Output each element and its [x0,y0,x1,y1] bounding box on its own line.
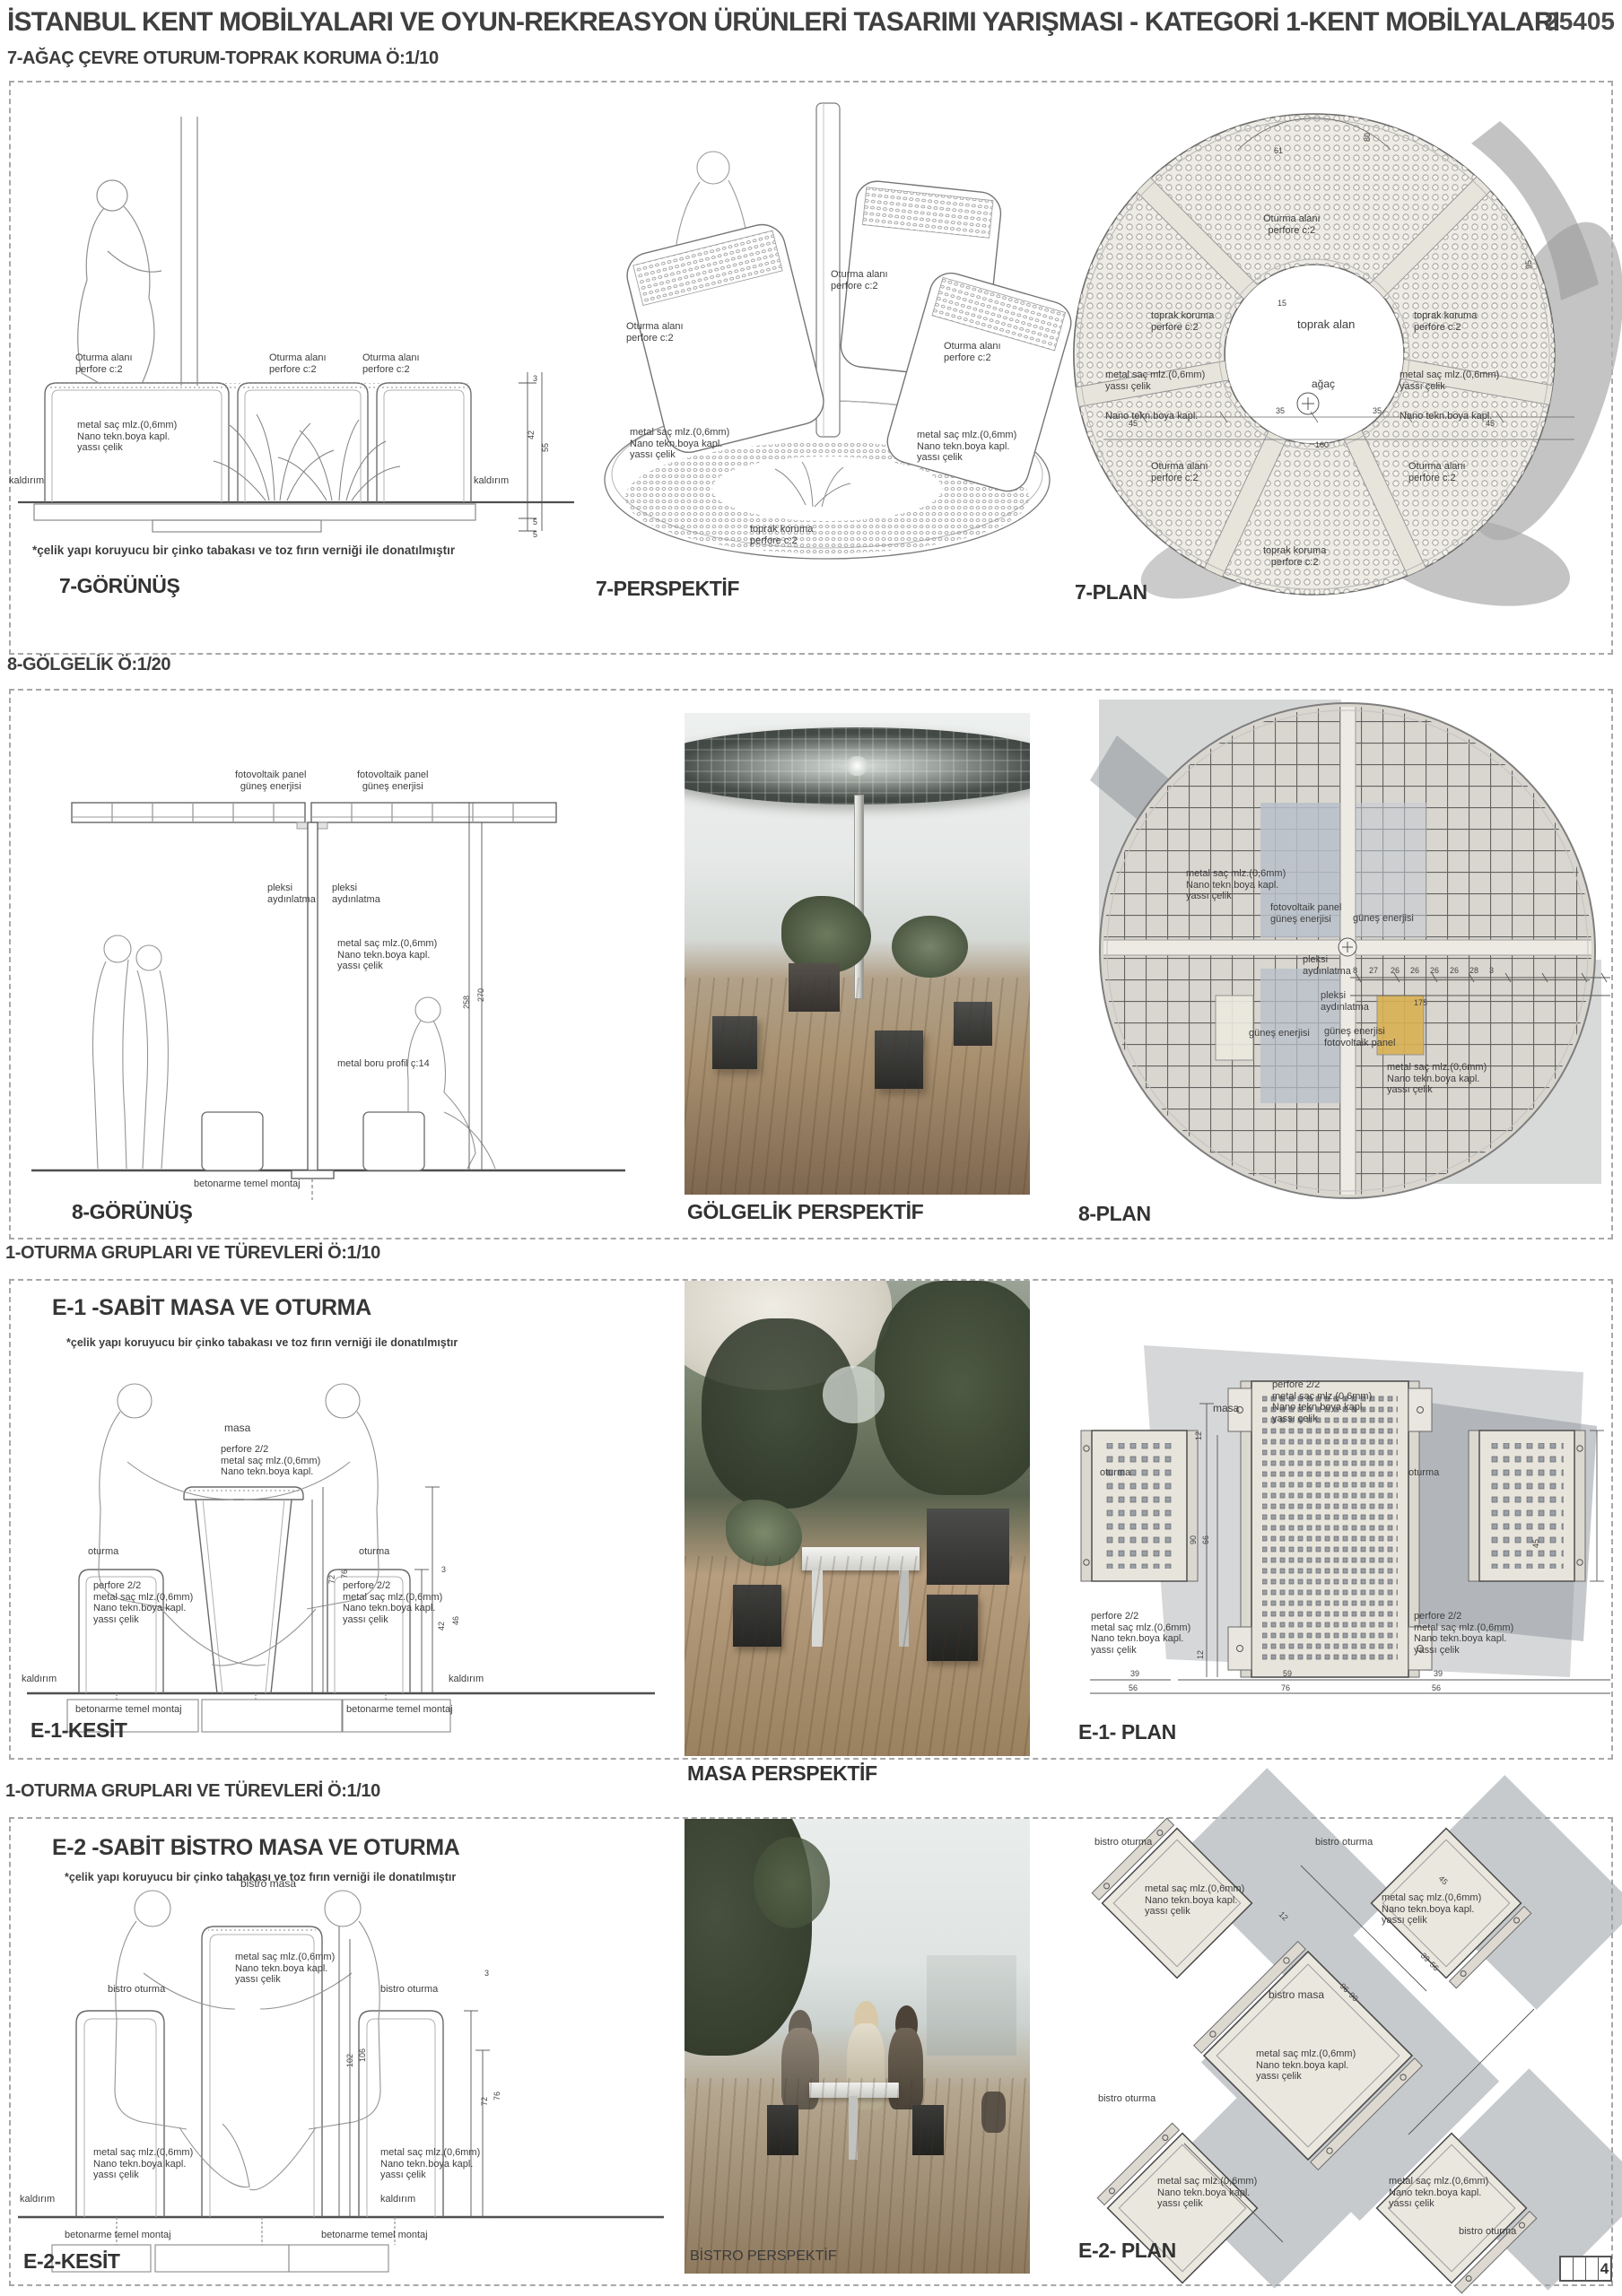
label-line: kaldırım [22,1674,57,1685]
label-line: Oturma alanı [1408,461,1466,473]
material-spec-label: metal saç mlz.(0,6mm) Nano tekn.boya kap… [1387,1062,1487,1096]
label-line: metal saç mlz.(0,6mm) [1091,1622,1190,1634]
label-line: yassı çelik [630,449,729,461]
bistro-seat-label: bistro oturma [1094,1837,1152,1848]
label-line: fotovoltaik panel [1270,902,1342,914]
seat-area-label: Oturma alanı perfore c:2 [1263,213,1321,236]
dim-value: 26 [1410,967,1419,975]
solar-label: güneş enerjisi [1249,1028,1310,1039]
label-line: yassı çelik [337,961,437,972]
bistro-seat-label: bistro oturma [108,1984,165,1996]
seat-area-label: Oturma alanı perfore c:2 [944,341,1001,363]
material-spec-label: metal saç mlz.(0,6mm) Nano tekn.boya kap… [77,420,177,454]
page-cell [1586,2257,1599,2280]
dim-value: 42 [528,430,536,439]
drawing-e1-kesit [27,1354,673,1735]
bistro-table-label: bistro masa [1269,1989,1324,2001]
label-line: Oturma alanı [944,341,1001,352]
label-line: betonarme temel montaj [194,1178,301,1190]
label-line: metal saç mlz.(0,6mm) [93,2147,193,2159]
caption-7-plan: 7-PLAN [1075,580,1147,604]
label-line: perfore c:2 [75,364,133,376]
label-line: yassı çelik [917,452,1016,464]
perforation-spec-label: perfore 2/2 metal saç mlz.(0,6mm) Nano t… [1091,1611,1190,1656]
label-line: toprak koruma [1414,310,1477,322]
seat-label: oturma [359,1546,389,1558]
label-line: perfore c:2 [362,364,420,376]
table-label: masa [224,1422,250,1434]
dim-value: 61 [1274,147,1283,155]
table-plan [1228,1381,1432,1677]
label-line: Nano tekn.boya kapl. [1400,411,1492,422]
render-photo-bistro: BİSTRO PERSPEKTİF [685,1819,1030,2274]
label-line: oturma [1408,1467,1439,1479]
bracket [1408,1388,1432,1431]
render-photo-golgelik [685,713,1030,1195]
perforation-spec-label: perfore 2/2 metal saç mlz.(0,6mm) Nano t… [1272,1379,1372,1424]
background-structure [927,1955,1016,2056]
label-line: güneş enerjisi [1249,1028,1310,1039]
perforated-seat [1490,1443,1564,1569]
label-line: yassı çelik [343,1614,442,1626]
label-line: Nano tekn.boya kapl. [337,950,437,961]
label-line: metal saç mlz.(0,6mm) [235,1952,335,1963]
dim-value: 258 [463,996,471,1009]
dim-value: 95 [1525,260,1533,269]
dim-value: 175 [1414,999,1427,1007]
dim-value: 45 [1129,420,1138,428]
seat-area-label: Oturma alanı perfore c:2 [1408,461,1466,483]
label-line: kaldırım [449,1674,484,1685]
label-line: fotovoltaik panel [357,770,429,781]
perforation-spec-label: perfore 2/2 metal saç mlz.(0,6mm) Nano t… [221,1444,320,1478]
bistro-seat-label: bistro oturma [1098,2093,1155,2105]
material-spec-label: metal saç mlz.(0,6mm) Nano tekn.boya kap… [93,2147,193,2181]
page-cell [1561,2257,1574,2280]
dim-value: 59 [1283,1670,1292,1678]
tree-label: ağaç [1312,378,1335,390]
label-line: yassı çelik [235,1974,335,1986]
label-line: perfore c:2 [1414,322,1477,334]
dim-value: 28 [1469,967,1478,975]
label-line: bistro oturma [1315,1837,1373,1848]
photovoltaic-label: fotovoltaik panel güneş enerjisi [357,770,429,792]
foundation-label: betonarme temel montaj [194,1178,301,1190]
label-line: aydınlatma [1303,966,1351,978]
label-line: metal saç mlz.(0,6mm) [1382,1892,1481,1904]
dim-value: 76 [1281,1684,1290,1692]
label-line: metal saç mlz.(0,6mm) [630,427,729,439]
dim-value: 27 [1369,967,1378,975]
dim-value: 35 [1373,407,1382,415]
label-line: oturma [359,1546,389,1558]
label-line: metal saç mlz.(0,6mm) [337,938,437,950]
label-line: Nano tekn.boya kapl. [235,1963,335,1975]
label-line: betonarme temel montaj [75,1704,182,1716]
section8-title: 8-GÖLGELİK Ö:1/20 [7,655,170,675]
plants [214,414,400,500]
label-line: aydınlatma [332,894,380,906]
caption-e2-plan: E-2- PLAN [1078,2239,1176,2263]
person-silhouette [115,1891,249,2187]
dim-value: 66 [1202,1535,1210,1544]
material-spec-label: Nano tekn.boya kapl. [1105,411,1198,422]
caption-8-gorunus: 8-GÖRÜNÜŞ [72,1200,192,1224]
caption-7-perspektif: 7-PERSPEKTİF [596,577,739,601]
seat-area-label: Oturma alanı perfore c:2 [75,352,133,375]
label-line: betonarme temel montaj [65,2230,171,2241]
perforation-spec-label: perfore 2/2 metal saç mlz.(0,6mm) Nano t… [343,1580,442,1625]
dim-value: 12 [1197,1650,1205,1659]
plexi-light-label: pleksi aydınlatma [1303,954,1351,977]
label-line: perfore 2/2 [93,1580,193,1592]
dim-value: 106 [359,2048,367,2062]
solar-label: güneş enerjisi [1353,913,1414,925]
tree-canopy [754,1837,830,1927]
dim-value: 55 [542,443,550,452]
label-line: yassı çelik [1256,2071,1356,2083]
render-photo-masa [685,1281,1030,1756]
material-spec-label: metal saç mlz.(0,6mm) Nano tekn.boya kap… [337,938,437,972]
label-line: metal saç mlz.(0,6mm) [1272,1391,1372,1403]
dim-value: 15 [1278,300,1286,308]
dim-value: 45 [1532,1539,1540,1548]
pavement-label: kaldırım [449,1674,484,1685]
dim-value: 46 [452,1616,460,1625]
label-line: Nano tekn.boya kapl. [93,2159,193,2170]
label-line: Nano tekn.boya kapl. [630,439,729,450]
caption-e1-kesit: E-1-KESİT [31,1718,127,1743]
furniture-patch [1216,996,1253,1060]
label-line: metal boru profil ç:14 [337,1058,430,1070]
material-spec-label: metal saç mlz.(0,6mm) yassı çelik [1105,370,1205,392]
material-spec-label: metal saç mlz.(0,6mm) yassı çelik [1400,370,1499,392]
perforated-seat [1103,1443,1176,1569]
soil-protection-label: toprak koruma perfore c:2 [1414,310,1477,333]
steel-pipe-label: metal boru profil ç:14 [337,1058,430,1070]
perforated-seat-strip [48,383,468,388]
dim-value: 3 [441,1566,446,1574]
label-line: Nano tekn.boya kapl. [1157,2187,1257,2199]
label-line: bistro oturma [108,1984,165,1996]
label-line: aydınlatma [1321,1002,1369,1013]
caption-golgelik-perspektif: GÖLGELİK PERSPEKTİF [687,1200,923,1224]
label-line: fotovoltaik panel [235,770,307,781]
pavement-label: kaldırım [9,475,44,487]
dim-value: 39 [1130,1670,1139,1678]
label-line: Nano tekn.boya kapl. [93,1603,193,1614]
label-line: yassı çelik [1186,891,1286,902]
seat-plan-left [1081,1431,1198,1581]
label-line: Oturma alanı [75,352,133,364]
foundation-label: betonarme temel montaj [75,1704,182,1716]
dim-value: 45 [1486,420,1495,428]
label-line: Nano tekn.boya kapl. [1091,1633,1190,1645]
label-line: kaldırım [380,2194,415,2205]
soil-protection-label: toprak koruma perfore c:2 [750,524,813,546]
perforated-tabletop [1262,1394,1398,1665]
label-line: perfore c:2 [1263,557,1326,569]
label-line: metal saç mlz.(0,6mm) [221,1456,320,1467]
page-cell [1574,2257,1586,2280]
dim-value: 35 [1276,407,1285,415]
dim-value: 8 [1353,967,1357,975]
label-line: toprak alan [1297,319,1355,331]
label-line: perfore c:2 [1151,473,1208,484]
pole [292,822,334,1200]
label-line: yassı çelik [1382,1915,1481,1926]
caption-masa-perspektif: MASA PERSPEKTİF [687,1761,877,1786]
canopy [72,803,556,822]
label-line: metal saç mlz.(0,6mm) [1389,2176,1488,2187]
label-line: yassı çelik [1105,381,1205,393]
label-line: yassı çelik [1091,1645,1190,1657]
label-line: perfore c:2 [831,281,888,292]
label-line: metal saç mlz.(0,6mm) [380,2147,480,2159]
pavement-label: kaldırım [380,2194,415,2205]
label-line: bistro oturma [1094,1837,1152,1848]
bistro-seat-label: bistro oturma [1459,2226,1516,2238]
perforation-spec-label: perfore 2/2 metal saç mlz.(0,6mm) Nano t… [1414,1611,1513,1656]
label-line: Nano tekn.boya kapl. [1414,1633,1513,1645]
deck-planks [685,2078,1030,2274]
dim-value: 160 [1315,441,1329,449]
label-line: bistro masa [240,1878,296,1890]
label-line: güneş enerjisi [1324,1026,1396,1038]
plexi-light-label: pleksi aydınlatma [267,883,316,905]
photovoltaic-label: fotovoltaik panel güneş enerjisi [1270,902,1342,925]
dim-value: 26 [1391,967,1400,975]
label-line: metal saç mlz.(0,6mm) [1256,2048,1356,2060]
page-indicator: 4 [1559,2256,1612,2282]
label-line: betonarme temel montaj [321,2230,428,2241]
steel-coating-note: *çelik yapı koruyucu bir çinko tabakası … [66,1336,458,1349]
label-line: pleksi [1303,954,1351,966]
material-spec-label: metal saç mlz.(0,6mm) Nano tekn.boya kap… [1157,2176,1257,2210]
label-line: Nano tekn.boya kapl. [1387,1074,1487,1085]
sky-gap [823,1366,885,1423]
dimension-lines [519,372,542,531]
label-line: yassı çelik [1400,381,1499,393]
plexi-light-label: pleksi aydınlatma [1321,990,1369,1013]
caption-e1-plan: E-1- PLAN [1078,1720,1176,1744]
pavement-label: kaldırım [474,475,509,487]
dim-value: 26 [1450,967,1459,975]
entry-number: 25405 [1518,7,1615,36]
material-spec-label: metal saç mlz.(0,6mm) Nano tekn.boya kap… [380,2147,480,2181]
drawing-8-plan [1081,700,1615,1202]
label-line: Nano tekn.boya kapl. [1272,1402,1372,1413]
label-line: toprak koruma [1263,545,1326,557]
label-line: Nano tekn.boya kapl. [1105,411,1198,422]
dim-value: 72 [481,2097,489,2106]
label-line: metal saç mlz.(0,6mm) [1400,370,1499,381]
label-line: perfore 2/2 [343,1580,442,1592]
label-line: perfore c:2 [269,364,327,376]
sectionE1-group-title: 1-OTURMA GRUPLARI VE TÜREVLERİ Ö:1/10 [5,1243,380,1264]
label-line: perfore c:2 [626,333,684,344]
label-line: metal saç mlz.(0,6mm) [1145,1883,1244,1895]
bistro-table-label: bistro masa [240,1878,296,1890]
label-line: Nano tekn.boya kapl. [1145,1895,1244,1907]
caption-7-gorunus: 7-GÖRÜNÜŞ [59,574,179,598]
dimension-lines [462,803,489,1170]
soil-area-label: toprak alan [1297,319,1355,331]
pavement-label: kaldırım [20,2194,55,2205]
perforated-tabletop [208,1926,316,1931]
dim-value: 56 [1432,1684,1441,1692]
material-spec-label: metal saç mlz.(0,6mm) Nano tekn.boya kap… [1145,1883,1244,1918]
deck-planks [685,978,1030,1195]
label-line: yassı çelik [1157,2198,1257,2210]
sectionE1-heading: E-1 -SABİT MASA VE OTURMA [52,1295,371,1321]
seat-label: oturma [88,1546,118,1558]
canopy-light [847,756,868,775]
caption-bistro-perspektif: BİSTRO PERSPEKTİF [690,2248,837,2265]
label-line: Nano tekn.boya kapl. [917,441,1016,453]
material-spec-label: metal saç mlz.(0,6mm) Nano tekn.boya kap… [1382,1892,1481,1926]
soil-protection-label: toprak koruma perfore c:2 [1263,545,1326,568]
sectionE2-group-title: 1-OTURMA GRUPLARI VE TÜREVLERİ Ö:1/10 [5,1781,380,1802]
deck-planks [685,1556,1030,1756]
label-line: Oturma alanı [269,352,327,364]
label-line: perfore c:2 [1408,473,1466,484]
label-line: perfore c:2 [1151,322,1214,334]
dim-value: 102 [346,2054,354,2067]
couple-silhouette [93,935,169,1169]
dim-value: 3 [1489,967,1494,975]
label-line: bistro oturma [380,1984,438,1996]
sectionE2-heading: E-2 -SABİT BİSTRO MASA VE OTURMA [52,1835,459,1861]
dim-value: 42 [438,1622,446,1631]
label-line: Nano tekn.boya kapl. [380,2159,480,2170]
label-line: kaldırım [474,475,509,487]
drawing-e2-kesit [18,1883,682,2278]
label-line: metal saç mlz.(0,6mm) [1414,1622,1513,1634]
label-line: Nano tekn.boya kapl. [221,1466,320,1478]
material-spec-label: metal saç mlz.(0,6mm) Nano tekn.boya kap… [1186,868,1286,902]
label-line: metal saç mlz.(0,6mm) [1186,868,1286,880]
dim-value: 26 [1430,967,1439,975]
soil-protection-label: toprak koruma perfore c:2 [1151,310,1214,333]
tree-trunk [181,117,197,386]
label-line: güneş enerjisi [235,781,307,793]
label-line: yassı çelik [1145,1906,1244,1918]
competition-board: { "header": { "title": "İSTANBUL KENT MO… [0,0,1622,2296]
label-line: kaldırım [20,2194,55,2205]
drawing-8-gorunus [22,717,632,1220]
label-line: masa [224,1422,250,1434]
seat-plan-right [1469,1431,1585,1581]
material-spec-label: metal saç mlz.(0,6mm) Nano tekn.boya kap… [1389,2176,1488,2210]
label-line: yassı çelik [77,442,177,454]
label-line: yassı çelik [1272,1413,1372,1425]
label-line: pleksi [332,883,380,894]
label-line: perfore c:2 [1263,225,1321,237]
plants [892,916,968,978]
seat-area-label: Oturma alanı perfore c:2 [362,352,420,375]
caption-e2-kesit: E-2-KESİT [23,2249,120,2274]
label-line: metal saç mlz.(0,6mm) [77,420,177,431]
label-line: aydınlatma [267,894,316,906]
label-line: metal saç mlz.(0,6mm) [1105,370,1205,381]
material-spec-label: metal saç mlz.(0,6mm) Nano tekn.boya kap… [630,427,729,461]
foundation-label: betonarme temel montaj [321,2230,428,2241]
label-line: Oturma alanı [831,269,888,281]
label-line: metal saç mlz.(0,6mm) [1387,1062,1487,1074]
caption-8-plan: 8-PLAN [1078,1202,1151,1226]
material-spec-label: metal saç mlz.(0,6mm) Nano tekn.boya kap… [235,1952,335,1986]
material-spec-label: metal saç mlz.(0,6mm) Nano tekn.boya kap… [917,430,1016,464]
label-line: Nano tekn.boya kapl. [1382,1904,1481,1916]
dim-value: 270 [477,988,485,1002]
table [184,1487,303,1693]
dim-value: 56 [1129,1684,1138,1692]
bracket [1228,1627,1251,1670]
photovoltaic-label: fotovoltaik panel güneş enerjisi [235,770,307,792]
foundation-label: betonarme temel montaj [65,2230,171,2241]
dim-value: 5 [533,518,537,526]
foundation-slab [34,504,475,520]
material-spec-label: metal saç mlz.(0,6mm) Nano tekn.boya kap… [1256,2048,1356,2083]
dim-value: 76 [493,2092,501,2100]
perforated-tabletop [188,1489,299,1493]
section7-title: 7-AĞAÇ ÇEVRE OTURUM-TOPRAK KORUMA Ö:1/10 [7,48,439,69]
foundation-pad [153,520,321,532]
board-title: İSTANBUL KENT MOBİLYALARI VE OYUN-REKREA… [7,7,1559,38]
bistro-seat-label: bistro oturma [1315,1837,1373,1848]
dim-value: 76 [341,1570,349,1578]
dim-value: 90 [1190,1535,1198,1544]
bistro-seat-label: bistro oturma [380,1984,438,1996]
label-line: ağaç [1312,378,1335,390]
seat-label: oturma [1100,1467,1130,1479]
label-line: kaldırım [9,475,44,487]
table-label: masa [1213,1403,1239,1414]
material-spec-label: Nano tekn.boya kapl. [1400,411,1492,422]
dim-value: 3 [484,1970,489,1978]
label-line: oturma [1100,1467,1130,1479]
label-line: perfore 2/2 [1272,1379,1372,1391]
seat-label: oturma [1408,1467,1439,1479]
dim-value: 72 [328,1575,336,1584]
label-line: Nano tekn.boya kapl. [1256,2060,1356,2072]
person-silhouette [249,1891,380,2190]
label-line: metal saç mlz.(0,6mm) [1157,2176,1257,2187]
dim-value: 39 [1434,1670,1443,1678]
label-line: Oturma alanı [1151,461,1208,473]
plants [781,896,871,973]
tree-canopy [875,1281,1030,1495]
plexi-light-label: pleksi aydınlatma [332,883,380,905]
label-line: toprak koruma [750,524,813,535]
label-line: yassı çelik [93,2170,193,2181]
label-line: yassı çelik [380,2170,480,2181]
tree-symbol [1297,393,1319,414]
label-line: yassı çelik [1389,2198,1488,2210]
seat-area-label: Oturma alanı perfore c:2 [626,321,684,344]
label-line: perfore 2/2 [221,1444,320,1456]
label-line: betonarme temel montaj [346,1704,453,1716]
label-line: yassı çelik [1414,1645,1513,1657]
label-line: bistro oturma [1459,2226,1516,2238]
seat-area-label: Oturma alanı perfore c:2 [831,269,888,291]
label-line: Nano tekn.boya kapl. [1186,880,1286,891]
page-number: 4 [1599,2257,1610,2280]
label-line: Oturma alanı [1263,213,1321,225]
dim-value: 5 [533,531,537,539]
label-line: oturma [88,1546,118,1558]
